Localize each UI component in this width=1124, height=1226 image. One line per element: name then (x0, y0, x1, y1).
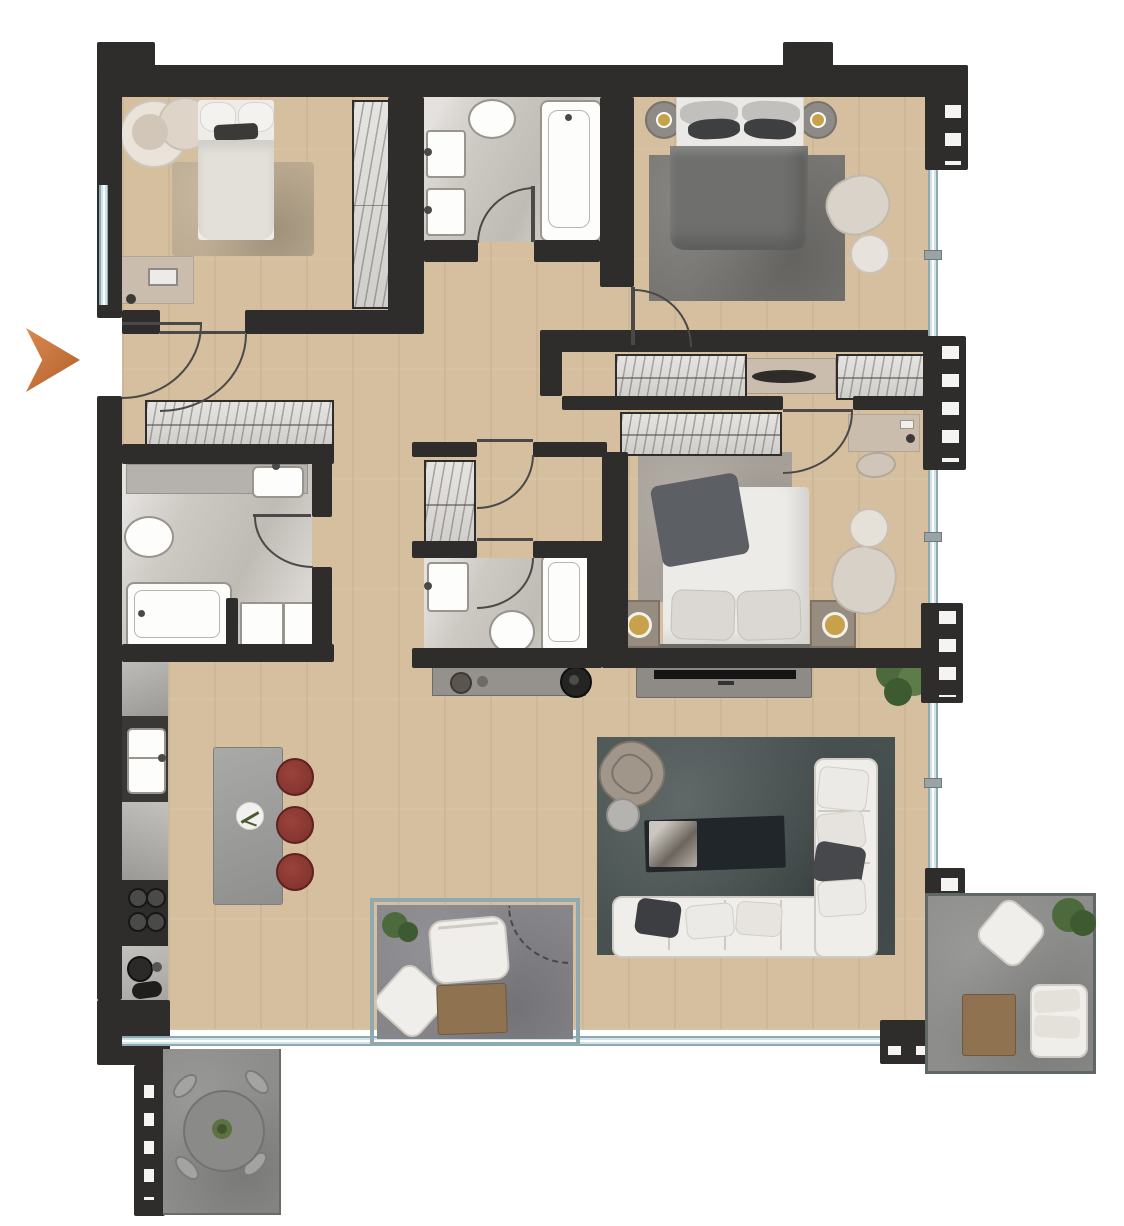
bathroom1-tub-drain (565, 114, 572, 121)
sideboard-decor-1 (450, 672, 472, 694)
coffee-table-marble-tray (649, 821, 697, 867)
wall-bedroom1-right (388, 97, 424, 334)
wall-bedroom1-bottom-b (245, 310, 412, 334)
sideboard-decor-2 (477, 676, 488, 687)
master-ottoman (850, 234, 890, 274)
bedroom1-duvet (198, 140, 274, 240)
cooktop-burner-1 (128, 888, 148, 908)
bathroom1-toilet (468, 99, 516, 139)
master-lamp-right (810, 112, 826, 128)
floor-plan (0, 0, 1124, 1226)
wall-bedroom2-bottom (602, 648, 935, 668)
wall-bathroom3-bottom (412, 648, 602, 668)
wall-top (97, 65, 968, 97)
wall-corner-bottom-left (97, 1000, 170, 1065)
facade-unit-top-right (925, 65, 968, 170)
sofa-pillow-2 (735, 900, 783, 937)
dressing-wardrobe-right (836, 354, 936, 400)
wall-vestibule-top-a (412, 442, 477, 457)
kitchen-sink-faucet (158, 754, 166, 762)
terrace-right-loveseat-pillow-1 (1033, 988, 1080, 1013)
wall-bathroom2-divider (226, 598, 238, 646)
bedroom1-armchair-seat (132, 114, 168, 150)
tv (654, 670, 796, 679)
bathroom1-sink1-faucet (424, 148, 432, 156)
wall-bathroom1-bottom-a (424, 240, 478, 262)
bedroom1-desk-laptop (148, 268, 178, 286)
cooktop-burner-3 (128, 912, 148, 932)
wall-bathroom2-bottom (122, 644, 334, 662)
bedroom1-window (99, 185, 108, 305)
entry-direction-arrow (26, 328, 80, 392)
bedroom1-folded-blanket (214, 123, 259, 141)
wall-bathroom1-bottom-b (534, 240, 600, 262)
bathroom1-sink2-faucet (424, 206, 432, 214)
bedroom2-wardrobe (620, 412, 782, 456)
wall-chimney (783, 42, 833, 72)
kitchen-coffee-machine (127, 956, 153, 982)
bedroom2-desk-lamp (906, 434, 915, 443)
loggia-coffee-table (436, 983, 508, 1035)
terrace-right-plant-2 (1070, 910, 1096, 936)
wall-master-bottom (540, 330, 935, 352)
terrace-right-table (962, 994, 1016, 1056)
bedroom1-wardrobe (352, 100, 392, 309)
terrace-left-slat-wall (134, 1065, 165, 1216)
living-plant-3 (884, 678, 912, 706)
bathroom2-tub-faucet (138, 610, 145, 617)
window-mullion-3 (924, 778, 942, 788)
wall-left-lower (97, 396, 122, 1000)
wall-hall-stub (540, 348, 562, 396)
vestibule-door-leaf (477, 439, 533, 442)
bedroom2-pillow-right (736, 589, 802, 641)
cooktop-burner-2 (146, 888, 166, 908)
sofa-pillow-5 (817, 878, 867, 917)
kitchen-counter-2 (122, 802, 168, 880)
bathroom3-door-leaf (477, 538, 533, 541)
bedroom2-lamp-right (822, 612, 848, 638)
tv-stand (718, 681, 734, 685)
bathroom1-sink-1 (426, 130, 466, 178)
window-mullion-2 (924, 532, 942, 542)
island-stool-2 (276, 806, 314, 844)
bedroom2-pillow-left (670, 589, 736, 641)
sofa-pillow-3 (816, 766, 870, 813)
bathroom3-bathtub-inner (548, 562, 580, 642)
wall-bathroom2-right-a (312, 444, 332, 517)
bedroom2-desk-item (900, 420, 914, 429)
island-stool-3 (276, 853, 314, 891)
wall-dressing-lower-b (853, 396, 935, 410)
bedroom2-throw-blanket (650, 472, 751, 568)
loggia-plant-2 (398, 922, 418, 942)
speaker-cone (569, 675, 579, 685)
wall-bedroom2-left (602, 452, 628, 668)
island-stool-1 (276, 758, 314, 796)
bathroom1-sink-2 (426, 188, 466, 236)
slat-detail-bl (144, 1085, 154, 1200)
wall-bathroom1-right (600, 97, 634, 287)
bathroom2-bathtub-inner (134, 590, 220, 638)
wall-bathroom3-top-a (412, 541, 477, 558)
kitchen-small-item (152, 962, 162, 972)
dressing-wardrobe-left (615, 354, 747, 400)
bedroom1-bin (126, 294, 136, 304)
bathroom3-sink-faucet (424, 582, 432, 590)
sofa-pillow-dark (634, 897, 683, 939)
cooktop-burner-4 (146, 912, 166, 932)
bathroom3-sink (427, 562, 469, 612)
master-lamp-left (656, 112, 672, 128)
bedroom2-ottoman (849, 508, 889, 548)
slat-detail-r3 (939, 611, 956, 697)
bathroom2-sink (252, 466, 304, 498)
slat-detail-r2 (942, 346, 959, 462)
sofa-pillow-1 (685, 902, 736, 940)
wall-bathroom2-top (122, 444, 334, 464)
living-side-table (606, 798, 640, 832)
bedroom2-lamp-left (626, 612, 652, 638)
window-mullion-1 (924, 250, 942, 260)
kitchen-sink-divider (129, 757, 160, 759)
bathroom1-bathtub-inner (548, 110, 590, 228)
wall-vestibule-top-b (533, 442, 607, 457)
slat-detail-tr (945, 105, 961, 165)
bathroom2-toilet (124, 516, 174, 558)
master-duvet (670, 146, 808, 250)
terrace-table-plant-core (217, 1124, 227, 1134)
dressing-console-bowl (752, 370, 816, 383)
terrace-right-loveseat-pillow-2 (1033, 1015, 1080, 1039)
wall-dressing-lower (562, 396, 783, 410)
walkin-closet-wardrobe (424, 460, 476, 548)
